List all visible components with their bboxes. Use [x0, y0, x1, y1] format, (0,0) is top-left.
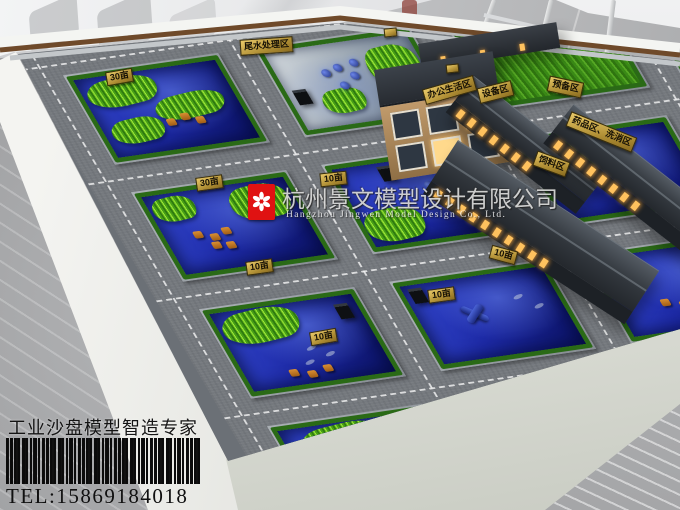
- wooden-figure: [226, 241, 239, 249]
- wooden-figure: [192, 231, 205, 239]
- grass-clump: [146, 192, 202, 225]
- company-logo: [248, 184, 275, 220]
- feeder-box: [333, 303, 355, 320]
- feeder-box: [291, 89, 313, 106]
- fish-figure: [324, 350, 336, 357]
- wooden-figure: [306, 369, 319, 377]
- lit-window-icon: [519, 43, 525, 51]
- wooden-figure: [194, 115, 207, 123]
- aerator-unit: [319, 69, 332, 78]
- wooden-figure: [659, 298, 672, 306]
- watermark: 杭州景文模型设计有限公司 Hangzhou Jingwen Model Desi…: [240, 178, 570, 234]
- aerator-unit: [347, 58, 360, 67]
- paddle-aerator: [455, 300, 493, 326]
- wooden-figure: [322, 364, 335, 372]
- fish-figure: [304, 358, 316, 365]
- company-name-cn: 杭州景文模型设计有限公司: [282, 180, 558, 214]
- background-red-object: [402, 0, 417, 17]
- fish-figure: [513, 293, 525, 300]
- wooden-figure: [220, 227, 233, 235]
- small-sign: [446, 63, 460, 73]
- pond-cell: [199, 287, 406, 399]
- wooden-figure: [211, 241, 224, 249]
- wooden-figure: [288, 369, 301, 377]
- window-icon: [395, 141, 428, 173]
- aerator-unit: [332, 64, 345, 73]
- small-sign: [384, 27, 398, 37]
- fish-figure: [533, 302, 545, 309]
- window-icon: [390, 108, 423, 140]
- feeder-box: [407, 287, 429, 304]
- company-name-en: Hangzhou Jingwen Model Design Co., Ltd.: [286, 210, 506, 220]
- aerator-unit: [348, 71, 361, 80]
- flower-asterisk-icon: [251, 191, 272, 212]
- wooden-figure: [209, 233, 222, 241]
- pond-cell: [63, 53, 270, 165]
- showroom-photo: 尾水处理区 办公生活区 设备区 预备区 药品区、洗消区 饲料区 30亩 30亩 …: [0, 0, 680, 510]
- grass-clump: [672, 247, 680, 298]
